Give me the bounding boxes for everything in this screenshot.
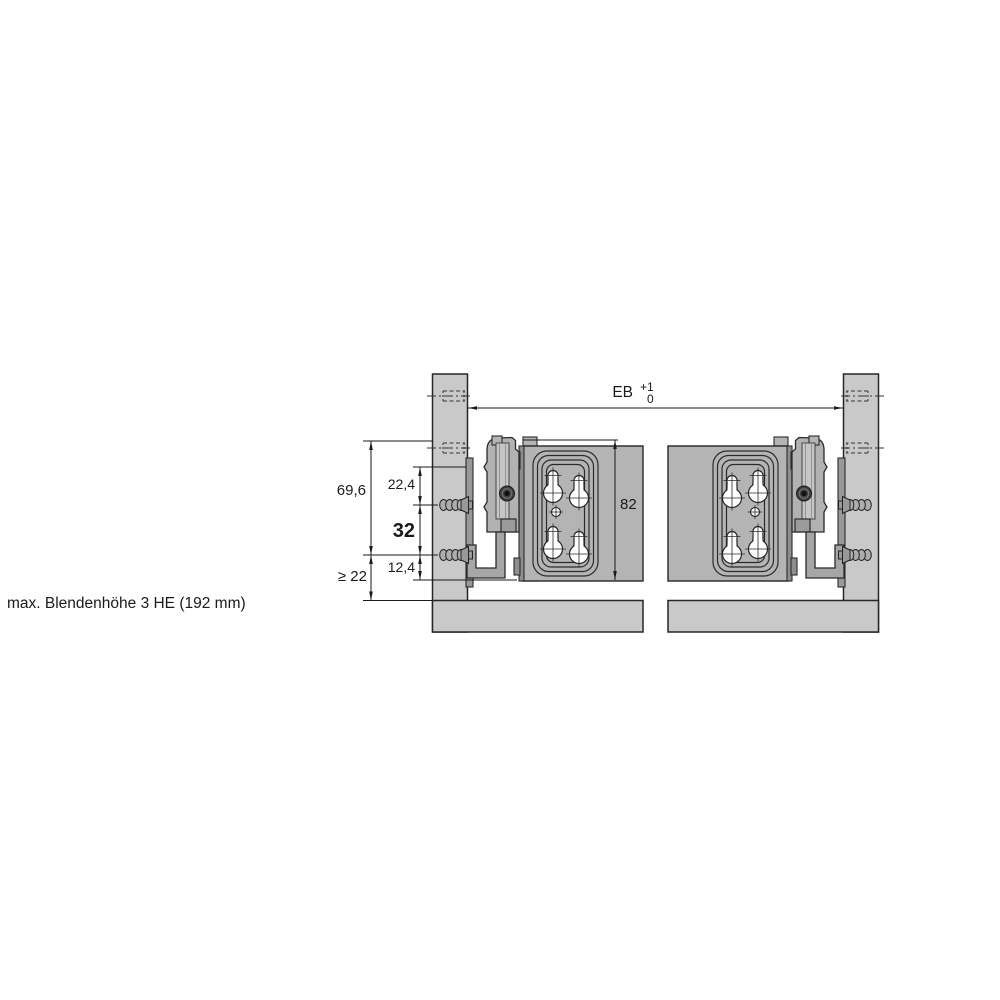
dim-label-eb: EB [612, 384, 633, 401]
dim-label-hole-spacing: 32 [393, 520, 415, 542]
dim-label-eb-tol-lower: 0 [647, 392, 654, 406]
left-assembly [427, 374, 643, 632]
dim-label-top-hole-offset: 22,4 [388, 476, 415, 492]
dimension-inner-chain: 22,4 32 12,4 [388, 467, 422, 580]
technical-drawing-page: EB +1 0 69,6 ≥ 22 [0, 0, 1000, 1000]
dim-label-total-height: 69,6 [337, 482, 366, 499]
note-max-front-height: max. Blendenhöhe 3 HE (192 mm) [7, 595, 246, 612]
dim-label-bottom-hole-offset: 12,4 [388, 559, 415, 575]
dim-label-plate-height: 82 [620, 496, 637, 513]
dimension-outer-chain: 69,6 ≥ 22 [337, 441, 373, 601]
dimension-installation-width: EB +1 0 [468, 380, 843, 410]
dim-label-min-clearance: ≥ 22 [338, 568, 367, 585]
front-panel-mounting-diagram: EB +1 0 69,6 ≥ 22 [0, 0, 1000, 1000]
right-assembly [668, 374, 884, 632]
